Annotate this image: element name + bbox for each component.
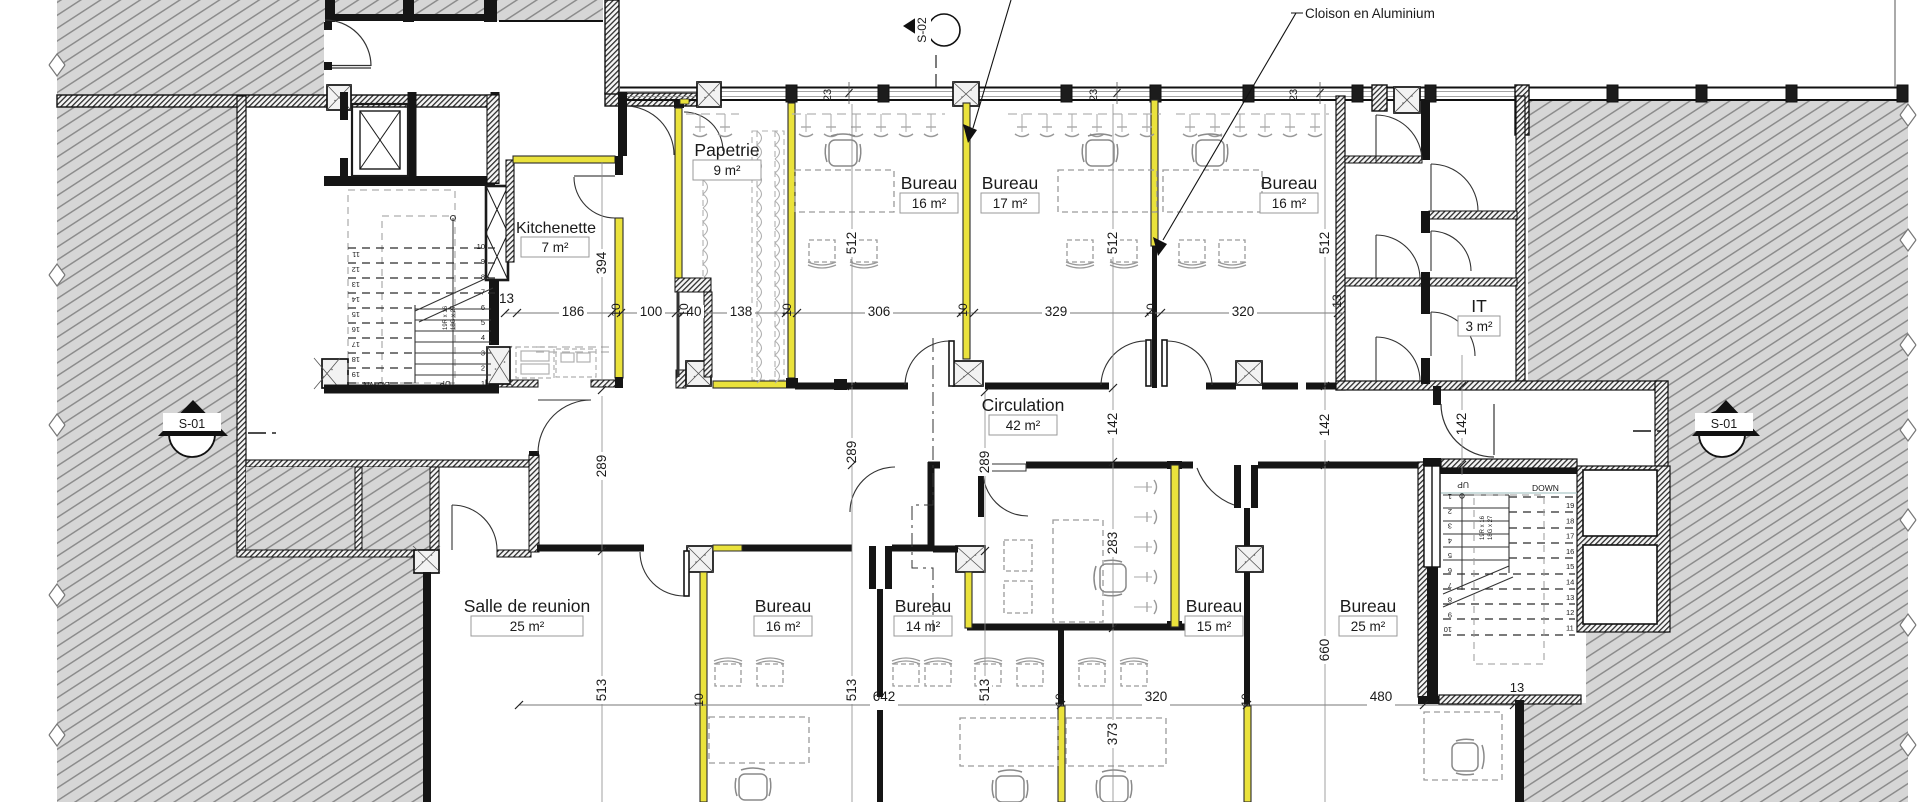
- svg-text:13: 13: [1566, 593, 1574, 602]
- svg-text:UP: UP: [439, 379, 451, 389]
- svg-text:3: 3: [481, 348, 485, 357]
- svg-text:3 m²: 3 m²: [1466, 319, 1494, 334]
- svg-text:19R x 16: 19R x 16: [443, 305, 449, 330]
- svg-text:16 m²: 16 m²: [912, 196, 947, 211]
- svg-text:283: 283: [1105, 532, 1120, 555]
- svg-text:18G x 27: 18G x 27: [451, 305, 457, 330]
- svg-text:42 m²: 42 m²: [1006, 418, 1041, 433]
- svg-text:9 m²: 9 m²: [714, 163, 742, 178]
- svg-text:642: 642: [873, 689, 896, 704]
- svg-text:306: 306: [868, 304, 891, 319]
- svg-text:UP: UP: [1457, 480, 1469, 490]
- svg-text:513: 513: [594, 679, 609, 702]
- svg-text:11: 11: [352, 250, 360, 259]
- svg-text:16: 16: [352, 325, 360, 334]
- svg-text:10: 10: [780, 303, 794, 317]
- svg-text:DOWN: DOWN: [363, 380, 390, 390]
- svg-text:373: 373: [1105, 723, 1120, 746]
- svg-text:Bureau: Bureau: [901, 173, 957, 193]
- svg-text:329: 329: [1045, 304, 1068, 319]
- svg-text:23: 23: [822, 89, 834, 101]
- svg-text:25 m²: 25 m²: [510, 619, 545, 634]
- svg-text:17: 17: [352, 340, 360, 349]
- svg-text:15: 15: [352, 310, 360, 319]
- svg-text:5: 5: [1448, 551, 1452, 560]
- svg-text:19R x 16: 19R x 16: [1480, 515, 1486, 540]
- svg-text:512: 512: [1317, 232, 1332, 255]
- svg-text:10: 10: [1444, 625, 1452, 634]
- svg-text:S-01: S-01: [1711, 417, 1737, 431]
- svg-text:289: 289: [977, 451, 992, 474]
- svg-text:S-01: S-01: [179, 417, 205, 431]
- svg-text:5: 5: [481, 318, 485, 327]
- svg-text:6: 6: [481, 303, 485, 312]
- svg-text:513: 513: [977, 679, 992, 702]
- svg-text:320: 320: [1232, 304, 1255, 319]
- svg-text:Papetrie: Papetrie: [694, 140, 759, 160]
- svg-text:512: 512: [1105, 232, 1120, 255]
- svg-text:10: 10: [1239, 693, 1253, 707]
- svg-text:7 m²: 7 m²: [542, 240, 570, 255]
- svg-text:8: 8: [481, 272, 485, 281]
- svg-text:15 m²: 15 m²: [1197, 619, 1232, 634]
- svg-text:15: 15: [1566, 562, 1574, 571]
- svg-text:Circulation: Circulation: [982, 395, 1065, 415]
- svg-text:9: 9: [481, 257, 485, 266]
- svg-text:13: 13: [1510, 680, 1524, 695]
- svg-text:Bureau: Bureau: [755, 596, 811, 616]
- svg-text:12: 12: [352, 265, 360, 274]
- svg-text:320: 320: [1145, 689, 1168, 704]
- svg-text:2: 2: [481, 364, 485, 373]
- svg-text:10: 10: [956, 303, 970, 317]
- svg-text:142: 142: [1454, 413, 1469, 436]
- svg-text:17: 17: [1566, 532, 1574, 541]
- svg-text:23: 23: [1288, 89, 1300, 101]
- svg-text:11: 11: [1566, 623, 1574, 632]
- svg-text:13: 13: [352, 280, 360, 289]
- svg-text:25 m²: 25 m²: [1351, 619, 1386, 634]
- svg-text:10: 10: [1053, 693, 1067, 707]
- svg-text:10: 10: [477, 242, 485, 251]
- svg-text:142: 142: [1317, 414, 1332, 437]
- svg-text:6: 6: [1448, 566, 1452, 575]
- svg-text:16: 16: [1566, 547, 1574, 556]
- svg-text:186: 186: [562, 304, 585, 319]
- svg-text:480: 480: [1370, 689, 1393, 704]
- svg-text:Bureau: Bureau: [1261, 173, 1317, 193]
- svg-text:IT: IT: [1471, 296, 1487, 316]
- svg-text:10: 10: [677, 303, 691, 317]
- svg-text:4: 4: [1448, 536, 1452, 545]
- svg-text:16 m²: 16 m²: [766, 619, 801, 634]
- svg-text:Salle de reunion: Salle de reunion: [464, 596, 590, 616]
- svg-text:18G x 27: 18G x 27: [1488, 515, 1494, 540]
- svg-text:142: 142: [1105, 413, 1120, 436]
- svg-text:2: 2: [1448, 507, 1452, 516]
- svg-text:289: 289: [594, 455, 609, 478]
- svg-text:512: 512: [844, 232, 859, 255]
- svg-text:Kitchenette: Kitchenette: [516, 220, 596, 237]
- svg-text:14: 14: [1566, 578, 1574, 587]
- svg-text:16 m²: 16 m²: [1272, 196, 1307, 211]
- svg-text:9: 9: [1448, 610, 1452, 619]
- svg-text:4: 4: [481, 333, 485, 342]
- svg-text:17 m²: 17 m²: [993, 196, 1028, 211]
- svg-text:19: 19: [1566, 501, 1574, 510]
- svg-text:10: 10: [609, 303, 623, 317]
- svg-text:3: 3: [1448, 522, 1452, 531]
- svg-text:100: 100: [640, 304, 663, 319]
- svg-text:10: 10: [692, 693, 706, 707]
- svg-text:513: 513: [844, 679, 859, 702]
- svg-text:14 m²: 14 m²: [906, 619, 941, 634]
- svg-text:8: 8: [1448, 596, 1452, 605]
- svg-text:1: 1: [481, 379, 485, 388]
- svg-text:14: 14: [352, 295, 360, 304]
- svg-text:Bureau: Bureau: [982, 173, 1038, 193]
- svg-text:10: 10: [1144, 303, 1158, 317]
- svg-text:289: 289: [844, 441, 859, 464]
- svg-text:13: 13: [499, 291, 514, 306]
- svg-text:13: 13: [1330, 294, 1344, 308]
- svg-text:Cloison en Aluminium: Cloison en Aluminium: [1305, 6, 1435, 21]
- svg-text:Bureau: Bureau: [895, 596, 951, 616]
- svg-text:12: 12: [1566, 608, 1574, 617]
- svg-text:7: 7: [481, 288, 485, 297]
- svg-text:660: 660: [1317, 639, 1332, 662]
- svg-text:138: 138: [730, 304, 753, 319]
- svg-text:19: 19: [352, 370, 360, 379]
- svg-text:7: 7: [1448, 581, 1452, 590]
- svg-text:1: 1: [1448, 492, 1452, 501]
- svg-text:23: 23: [1088, 89, 1100, 101]
- svg-text:394: 394: [594, 251, 609, 274]
- svg-text:S-02: S-02: [915, 17, 929, 43]
- svg-text:Bureau: Bureau: [1340, 596, 1396, 616]
- svg-text:DOWN: DOWN: [1532, 483, 1559, 493]
- svg-text:18: 18: [1566, 516, 1574, 525]
- svg-text:18: 18: [352, 355, 360, 364]
- svg-text:Bureau: Bureau: [1186, 596, 1242, 616]
